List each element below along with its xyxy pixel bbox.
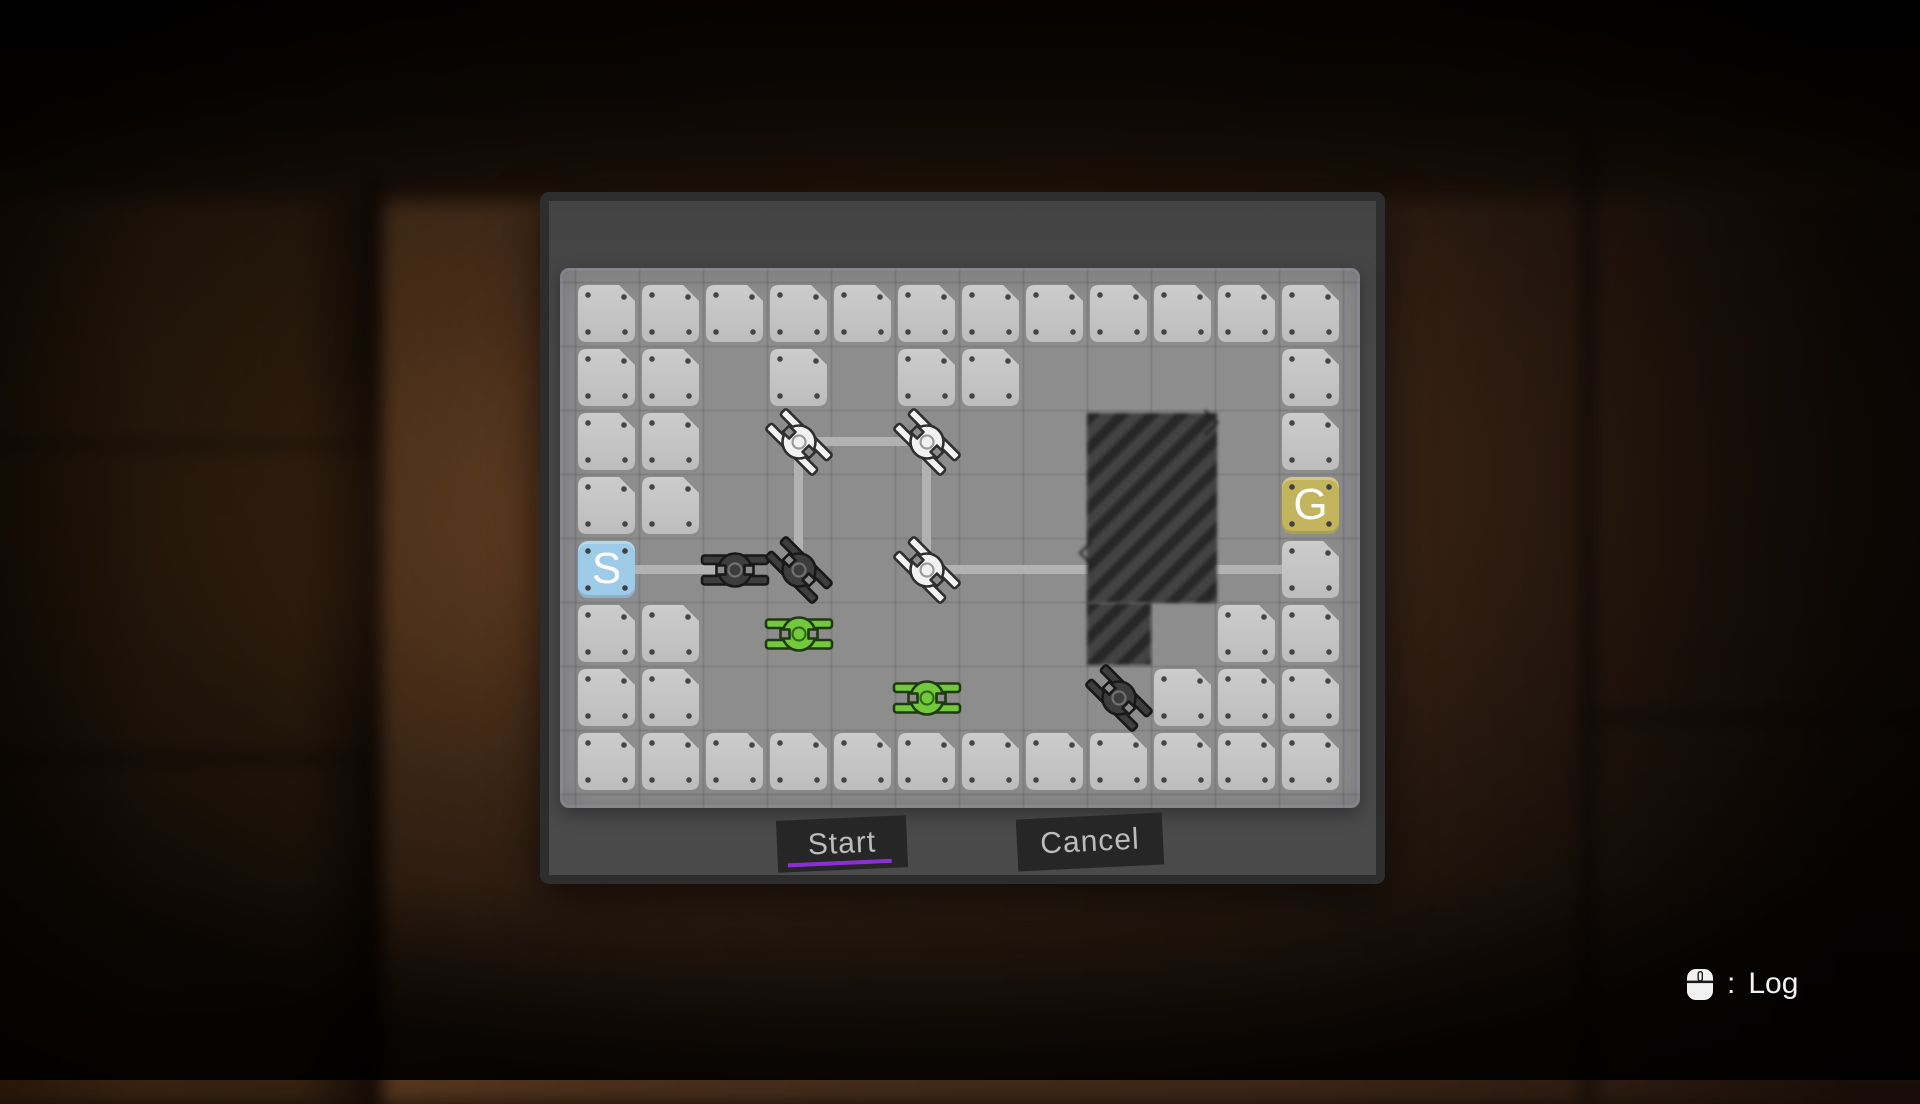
board-tile — [1282, 413, 1339, 470]
cancel-button[interactable]: Cancel — [1016, 812, 1164, 871]
board-tile — [1282, 541, 1339, 598]
board-tile — [578, 285, 635, 342]
board-tile — [962, 349, 1019, 406]
board-tile — [642, 285, 699, 342]
log-hint[interactable]: : Log — [1686, 962, 1798, 1006]
board-tile — [1154, 669, 1211, 726]
board-tile — [962, 285, 1019, 342]
goal-tile: G — [1282, 477, 1339, 534]
board-tile — [642, 733, 699, 790]
turret-sprite — [885, 656, 969, 740]
board-tile — [1154, 733, 1211, 790]
level-board: SG — [560, 268, 1360, 808]
board-tile — [1026, 733, 1083, 790]
goal-tile-label: G — [1293, 483, 1327, 527]
board-tile — [578, 605, 635, 662]
board-tile — [642, 477, 699, 534]
board-tile — [898, 285, 955, 342]
board-tile — [642, 349, 699, 406]
turret-white — [885, 400, 969, 484]
turret-white — [757, 400, 841, 484]
board-tile — [1218, 605, 1275, 662]
board-tile — [1282, 605, 1339, 662]
board-tile — [898, 349, 955, 406]
board-tile — [578, 733, 635, 790]
board-tile — [834, 733, 891, 790]
turret-sprite — [757, 592, 841, 676]
board-tile — [834, 285, 891, 342]
board-tile — [642, 605, 699, 662]
log-hint-separator: : — [1727, 967, 1735, 1001]
start-tile-label: S — [592, 547, 621, 591]
board-tile — [578, 669, 635, 726]
turret-sprite — [885, 528, 969, 612]
start-tile: S — [578, 541, 635, 598]
turret-green — [757, 592, 841, 676]
log-hint-label: Log — [1748, 967, 1798, 1001]
board-tile — [706, 285, 763, 342]
board-tile — [706, 733, 763, 790]
board-tile — [1218, 285, 1275, 342]
turret-white — [885, 528, 969, 612]
board-tile — [578, 413, 635, 470]
start-button-label: Start — [807, 826, 877, 863]
board-tile — [1154, 285, 1211, 342]
turret-sprite — [885, 400, 969, 484]
level-preview-dialog: SG Start Cancel — [540, 192, 1385, 884]
board-tile — [770, 285, 827, 342]
board-tile — [642, 413, 699, 470]
start-button-underline — [788, 858, 892, 867]
turret-black — [1077, 656, 1161, 740]
turret-sprite — [1077, 656, 1161, 740]
board-tile — [1282, 733, 1339, 790]
start-button[interactable]: Start — [776, 815, 908, 873]
board-tile — [578, 349, 635, 406]
hazard-zone — [1087, 413, 1217, 603]
board-tile — [962, 733, 1019, 790]
board-tile — [770, 349, 827, 406]
cancel-button-label: Cancel — [1040, 823, 1141, 862]
mouse-icon — [1686, 968, 1714, 1001]
board-tile — [1090, 285, 1147, 342]
board-tile — [1090, 733, 1147, 790]
board-tile — [1218, 733, 1275, 790]
turret-green — [885, 656, 969, 740]
turret-sprite — [757, 400, 841, 484]
board-tile — [1218, 669, 1275, 726]
board-tile — [642, 669, 699, 726]
board-tile — [1026, 285, 1083, 342]
board-tile — [1282, 349, 1339, 406]
board-tile — [898, 733, 955, 790]
board-tile — [1282, 285, 1339, 342]
board-tile — [770, 733, 827, 790]
board-tile — [1282, 669, 1339, 726]
board-tile — [578, 477, 635, 534]
